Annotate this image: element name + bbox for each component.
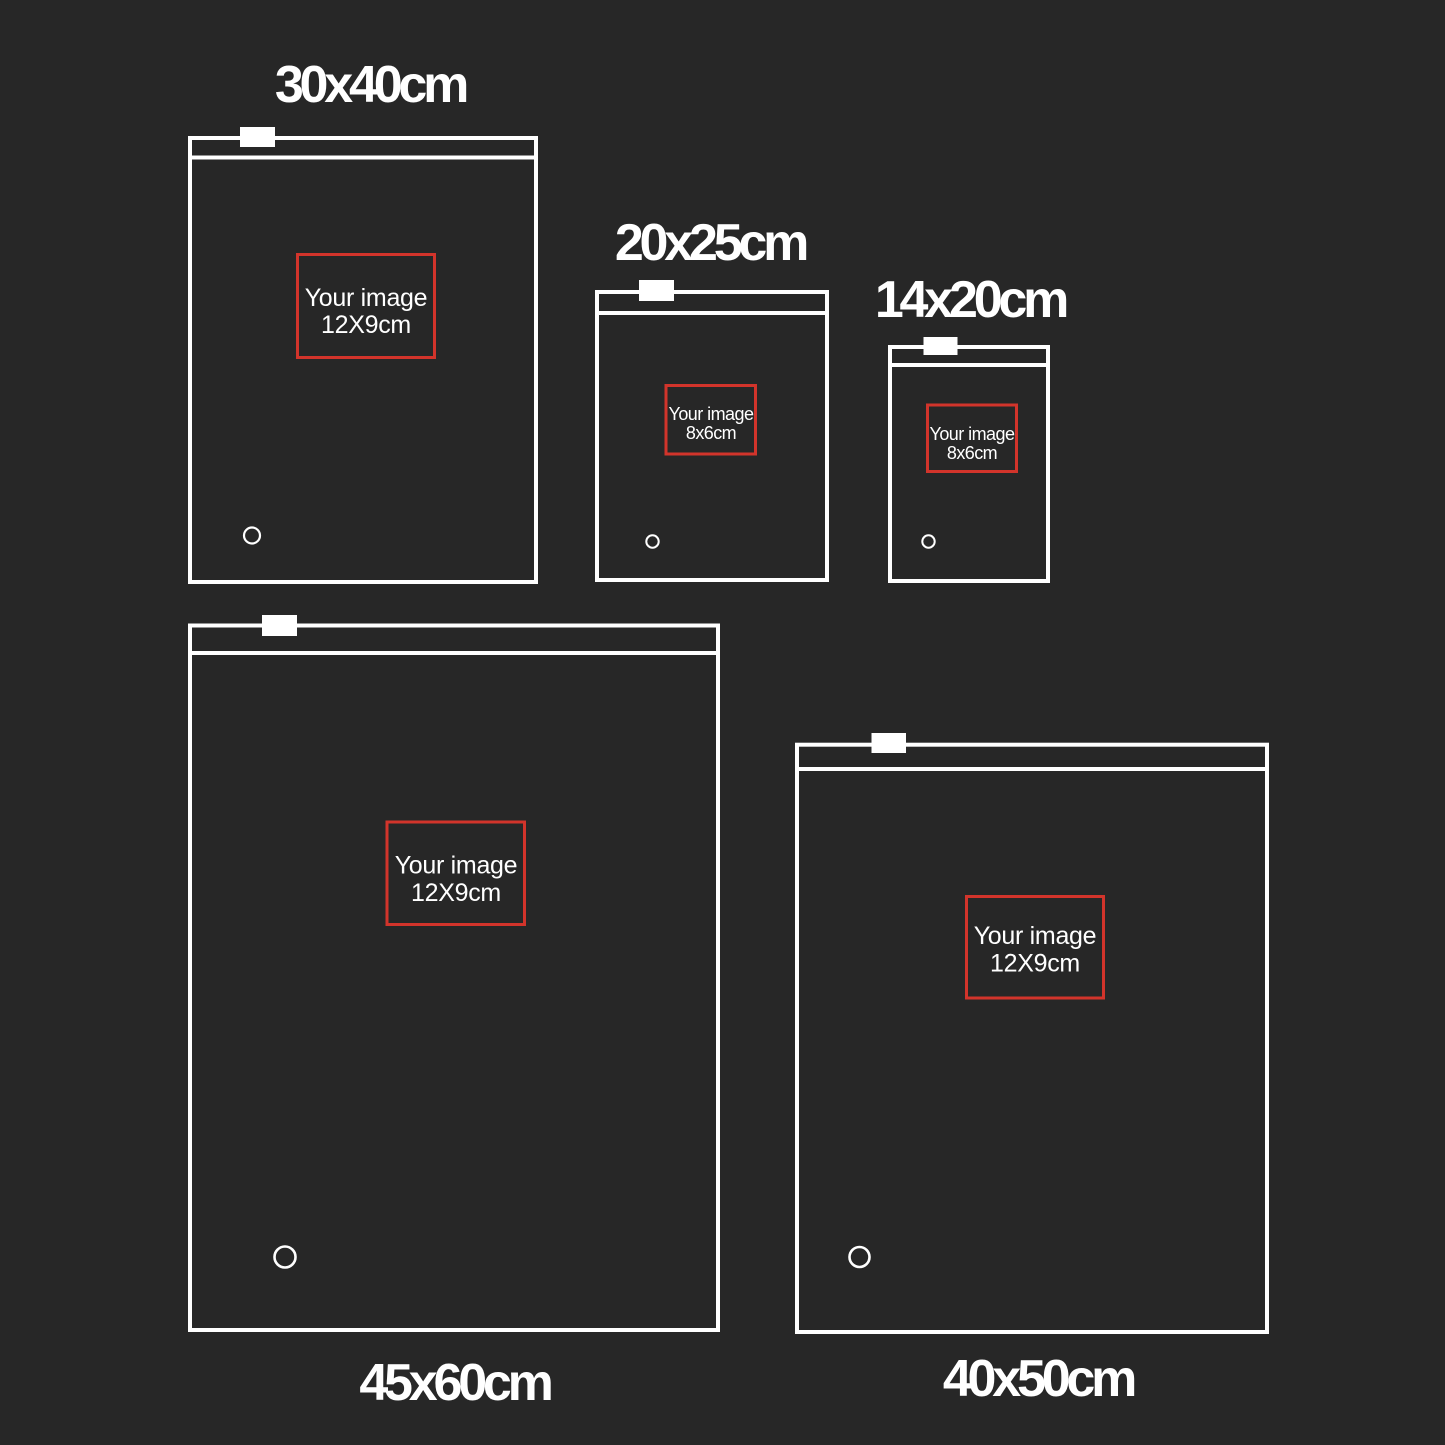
svg-text:8x6cm: 8x6cm — [686, 423, 736, 443]
svg-text:Your image: Your image — [669, 404, 754, 424]
svg-text:Your image: Your image — [974, 922, 1097, 950]
svg-text:Your image: Your image — [395, 852, 518, 880]
svg-text:45x60cm: 45x60cm — [359, 1354, 551, 1412]
svg-text:40x50cm: 40x50cm — [943, 1350, 1135, 1408]
svg-text:12X9cm: 12X9cm — [321, 311, 411, 339]
svg-text:8x6cm: 8x6cm — [947, 443, 997, 463]
svg-text:30x40cm: 30x40cm — [275, 56, 467, 114]
svg-text:14x20cm: 14x20cm — [875, 271, 1067, 329]
svg-text:Your image: Your image — [305, 284, 428, 312]
svg-text:12X9cm: 12X9cm — [990, 950, 1080, 978]
svg-text:Your image: Your image — [930, 424, 1015, 444]
svg-text:20x25cm: 20x25cm — [615, 214, 807, 272]
svg-text:12X9cm: 12X9cm — [411, 879, 501, 907]
